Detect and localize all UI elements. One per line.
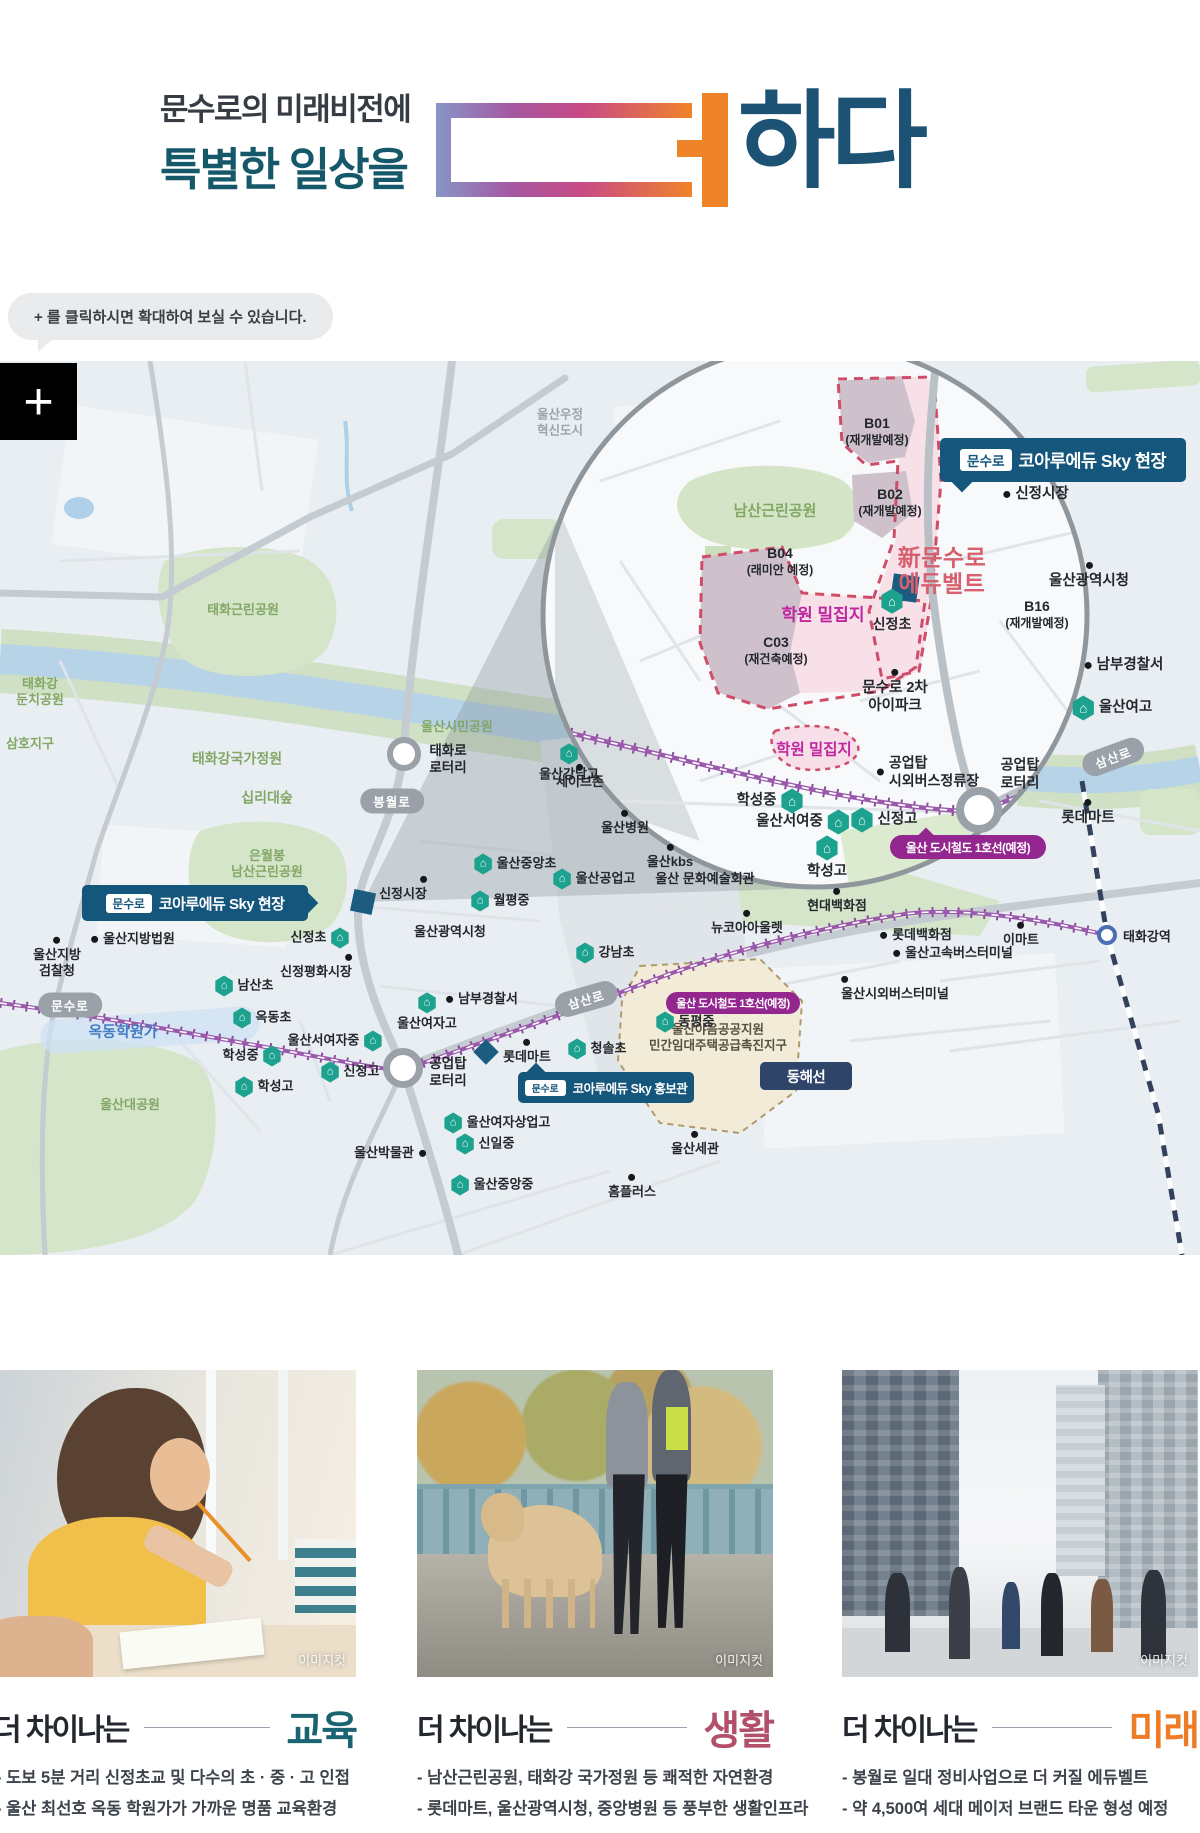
school-hakseong-high-main-school-icon: ⌂ xyxy=(235,1077,254,1098)
logo-suffix-text: 하다 xyxy=(738,90,923,194)
school-ulsan-technical-high-school-icon: ⌂ xyxy=(553,869,572,890)
school-dongpyeong-middle-school-icon: ⌂ xyxy=(656,1012,675,1033)
poi-ulsan-intercity-bus-terminal-label: 울산시외버스터미널 xyxy=(841,986,949,1002)
school-namsan-elem: ⌂남산초 xyxy=(215,976,274,997)
park-ulsan-grand: 울산대공원 xyxy=(100,1097,160,1113)
poi-ulsan-express-bus-terminal-label: 울산고속버스터미널 xyxy=(905,945,1013,961)
school-ulsan-jungang-elem-school-icon: ⌂ xyxy=(474,854,493,875)
poi-lotte-dept-dot xyxy=(880,932,887,939)
taehwaro-rotary-node xyxy=(387,737,421,771)
caption-future-rule xyxy=(992,1727,1112,1728)
poi-lottemart-main-dot xyxy=(524,1039,531,1046)
school-okdong-elem-school-icon: ⌂ xyxy=(233,1008,252,1029)
poi-hyundai-dept-dot xyxy=(834,888,841,895)
road-samsanro-inset: 삼산로 xyxy=(1079,734,1147,779)
poi-newcore-outlet-dot xyxy=(743,910,750,917)
poi-ulsan-city-hall-inset-label: 울산광역시청 xyxy=(1049,572,1129,590)
poi-ulsan-kbs-dot xyxy=(666,844,673,851)
school-ulsan-seo-girls-middle-inset: 울산서여중⌂ xyxy=(756,810,850,835)
school-ulsan-technical-high-label: 울산공업고 xyxy=(576,871,636,887)
school-gangnam-elem-school-icon: ⌂ xyxy=(576,943,595,964)
poi-hyundai-dept-label: 현대백화점 xyxy=(807,898,867,914)
taehwagang-station: 태화강역 xyxy=(1097,925,1171,945)
poi-lottemart-inset-dot xyxy=(1085,799,1092,806)
poi-hyundai-dept: 현대백화점 xyxy=(807,888,867,914)
poi-nambu-police-inset-label: 남부경찰서 xyxy=(1097,656,1164,674)
badge-site-hyeonjang-main: 문수로코아루에듀 Sky 현장 xyxy=(82,885,308,921)
poi-ulsan-express-bus-terminal-dot xyxy=(893,950,900,957)
zoom-hint-tooltip: + 를 클릭하시면 확대하여 보실 수 있습니다. xyxy=(8,293,333,340)
photo1-imagecut-tag: 이미지컷 xyxy=(298,1650,346,1669)
badge-site-hyeonjang-main-pointer xyxy=(296,892,319,915)
badge-site-hyeonjang-inset-pointer xyxy=(951,470,974,493)
park-taehwa-neighborhood: 태화근린공원 xyxy=(207,602,279,618)
park-namsan-inset: 남산근린공원 xyxy=(734,503,817,522)
caption-future-prefix: 더 차이나는 xyxy=(842,1705,976,1749)
school-ulsan-girls-commercial-high-school-icon: ⌂ xyxy=(444,1113,463,1134)
school-ulsan-gangnam-high-school-icon: ⌂ xyxy=(560,743,579,764)
poi-ulsan-museum-label: 울산박물관 xyxy=(354,1145,414,1161)
badge-site-hyeonjang-main-prefix: 문수로 xyxy=(106,894,152,913)
poi-sinjeong-market-inset-label: 신정시장 xyxy=(1015,485,1068,503)
poi-ulsan-district-court-label: 울산지방법원 xyxy=(103,931,175,947)
zone-c03-status: (재건축예정) xyxy=(744,651,807,666)
caption-life-rule xyxy=(567,1727,687,1728)
school-ulsan-girls-high-inset-school-icon: ⌂ xyxy=(1072,696,1095,721)
school-ulsan-technical-high: ⌂울산공업고 xyxy=(553,869,636,890)
location-map: + 태화근린공원태화강둔치공원삼호지구태화강국가정원십리대숲은월봉남산근린공원울… xyxy=(0,361,1200,1255)
poi-nambu-police-main-label: 남부경찰서 xyxy=(458,991,518,1007)
zone-b02-status: (재개발예정) xyxy=(858,503,921,518)
poi-sinjeong-market-main-label: 신정시장 xyxy=(379,886,427,902)
poi-lotte-dept: 롯데백화점 xyxy=(880,927,952,943)
school-hakseong-middle-main-school-icon: ⌂ xyxy=(262,1046,281,1067)
poi-homeplus-label: 홈플러스 xyxy=(608,1184,656,1200)
school-dongpyeong-middle-label: 동평중 xyxy=(679,1014,715,1030)
zone-b02-code: B02 xyxy=(858,486,921,504)
road-munsuro: 문수로 xyxy=(38,993,102,1018)
school-ulsan-girls-high-main-label: 울산여자고 xyxy=(397,1015,457,1031)
photo3-imagecut-tag: 이미지컷 xyxy=(1140,1650,1188,1669)
title-line2: 특별한 일상을 xyxy=(160,133,410,198)
poi-ulsan-museum: 울산박물관 xyxy=(354,1145,426,1161)
tooltip-tail xyxy=(38,338,54,352)
poi-ulsan-district-prosecutors: 울산지방검찰청 xyxy=(33,937,81,980)
school-sinjeong-high-inset-label: 신정고 xyxy=(877,811,917,829)
badge-site-hyeonjang-inset: 문수로코아루에듀 Sky 현장 xyxy=(940,438,1186,482)
school-sinjeong-elem-inset-school-icon: ⌂ xyxy=(880,589,903,614)
zone-c03-code: C03 xyxy=(744,634,807,652)
poi-nambu-police-inset: 남부경찰서 xyxy=(1085,656,1164,674)
school-sinjeong-high-main: ⌂신정고 xyxy=(321,1062,380,1083)
bullet-life-1: - 남산근린공원, 태화강 국가정원 등 쾌적한 자연환경 xyxy=(417,1763,808,1794)
map-zoom-button[interactable]: + xyxy=(0,363,77,440)
poi-lottemart-inset: 롯데마트 xyxy=(1061,799,1114,827)
badge-donghae-line-label: 동해선 xyxy=(787,1066,826,1087)
school-gangnam-elem-label: 강남초 xyxy=(599,945,635,961)
badge-site-hongbogwan-prefix: 문수로 xyxy=(525,1080,566,1096)
school-ulsan-gangnam-high-label: 울산강남고 xyxy=(539,766,599,782)
school-ulsan-jungang-middle-school-icon: ⌂ xyxy=(451,1175,470,1196)
poi-nambu-police-inset-dot xyxy=(1085,662,1092,669)
photo2-dog-head xyxy=(481,1493,524,1542)
photo2-runner1-torso xyxy=(606,1382,649,1486)
poi-lottemart-main-label: 롯데마트 xyxy=(503,1049,551,1065)
school-ulsan-seo-girls-middle-inset-school-icon: ⌂ xyxy=(827,810,850,835)
photo-life: 이미지컷 xyxy=(417,1370,773,1677)
badge-site-hyeonjang-inset-prefix: 문수로 xyxy=(960,449,1012,471)
school-hakseong-middle-main: 학성중⌂ xyxy=(223,1046,282,1067)
poi-sinjeong-market-inset: 신정시장 xyxy=(1003,485,1068,503)
bullet-education-2: - 울산 최선호 옥동 학원가가 가까운 명품 교육환경 xyxy=(0,1794,350,1825)
poi-ulsan-district-court-dot xyxy=(91,936,98,943)
badge-site-hyeonjang-inset-label: 코아루에듀 Sky 현장 xyxy=(1019,448,1167,473)
poi-homeplus-dot xyxy=(629,1174,636,1181)
poi-newcore-outlet: 뉴코아아울렛 xyxy=(711,910,783,936)
poi-ulsan-district-court: 울산지방법원 xyxy=(91,931,175,947)
photo1-hand xyxy=(0,1616,93,1677)
bullets-future: - 봉월로 일대 정비사업으로 더 커질 에듀벨트 - 약 4,500여 세대 … xyxy=(842,1763,1168,1825)
zone-b16-code: B16 xyxy=(1005,598,1068,616)
poi-sinjeong-peace-market-label: 신정평화시장 xyxy=(280,964,352,980)
zone-b16: B16(재개발예정) xyxy=(1005,598,1068,631)
park-eunwolbong-namsan: 은월봉남산근린공원 xyxy=(231,848,303,881)
zone-b16-status: (재개발예정) xyxy=(1005,615,1068,630)
page: 문수로의 미래비전에 특별한 일상을 하다 + 를 클릭하시면 확대하여 보실 … xyxy=(0,0,1200,1833)
poi-lotte-dept-label: 롯데백화점 xyxy=(892,927,952,943)
photo2-dog-legs xyxy=(502,1579,595,1628)
road-bongwolro: 봉월로 xyxy=(360,789,424,814)
poi-gongeuptap-bus-stop: 공업탑시외버스정류장 xyxy=(877,755,979,790)
photo3-person5 xyxy=(1091,1579,1112,1653)
poi-sinjeong-market-main: 신정시장 xyxy=(379,876,427,902)
poi-ulsan-customs: 울산세관 xyxy=(671,1131,719,1157)
bullet-future-1: - 봉월로 일대 정비사업으로 더 커질 에듀벨트 xyxy=(842,1763,1168,1794)
school-hakseong-high-inset: ⌂학성고 xyxy=(807,835,847,880)
school-ulsan-jungang-middle-label: 울산중앙중 xyxy=(474,1177,534,1193)
taehwagang-station-node xyxy=(1097,925,1117,945)
school-sinil-middle-school-icon: ⌂ xyxy=(456,1134,475,1155)
badge-site-hongbogwan-label: 코아루에듀 Sky 홍보관 xyxy=(573,1078,688,1097)
school-sinjeong-high-inset: ⌂신정고 xyxy=(850,808,917,833)
school-ulsan-seo-girls-middle-label: 울산서여자중 xyxy=(288,1033,360,1049)
school-ulsan-girls-high-main: ⌂울산여자고 xyxy=(397,992,457,1031)
bullets-education: - 도보 5분 거리 신정초교 및 다수의 초 · 중 · 고 인접 - 울산 … xyxy=(0,1763,350,1825)
zone-b02: B02(재개발예정) xyxy=(858,486,921,519)
school-hakseong-middle-inset-label: 학성중 xyxy=(736,792,776,810)
poi-ulsan-customs-dot xyxy=(692,1131,699,1138)
poi-ulsan-intercity-bus-terminal: 울산시외버스터미널 xyxy=(841,976,949,1002)
poi-lottemart-inset-label: 롯데마트 xyxy=(1061,809,1114,827)
map-label-layer: 태화근린공원태화강둔치공원삼호지구태화강국가정원십리대숲은월봉남산근린공원울산시… xyxy=(0,361,1200,1255)
photo-future: 이미지컷 xyxy=(842,1370,1198,1677)
logo-gradient-d-icon xyxy=(436,103,692,197)
poi-munsuro-2cha-ipark-label: 문수로 2차아이파크 xyxy=(862,679,927,715)
poi-ulsan-customs-label: 울산세관 xyxy=(671,1141,719,1157)
brand-logo: 하다 xyxy=(436,90,923,207)
school-namsan-elem-school-icon: ⌂ xyxy=(215,976,234,997)
zone-b01-code: B01 xyxy=(845,415,908,433)
school-okdong-elem-label: 옥동초 xyxy=(256,1010,292,1026)
badge-donghae-line: 동해선 xyxy=(760,1062,852,1090)
school-sinjeong-elem-main: 신정초⌂ xyxy=(291,928,350,949)
school-cheongsol-elem: ⌂청솔초 xyxy=(568,1039,627,1060)
poi-ulsan-district-prosecutors-dot xyxy=(54,937,61,944)
bullet-future-2: - 약 4,500여 세대 메이저 브랜드 타운 형성 예정 xyxy=(842,1794,1168,1825)
poi-ulsan-hospital-dot xyxy=(622,810,629,817)
caption-education-rule xyxy=(144,1727,270,1728)
poi-ulsan-kbs-label: 울산kbs xyxy=(647,854,693,870)
school-ulsan-seo-girls-middle-school-icon: ⌂ xyxy=(363,1031,382,1052)
photo3-person1 xyxy=(885,1573,910,1653)
caption-education-keyword: 교육 xyxy=(286,1698,356,1756)
logo-eo-tick xyxy=(677,140,702,157)
photo1-window-bar2 xyxy=(278,1370,288,1560)
poi-ulsan-hospital: 울산병원 xyxy=(601,810,649,836)
poi-ulsan-hospital-label: 울산병원 xyxy=(601,820,649,836)
caption-education: 더 차이나는 교육 xyxy=(0,1700,356,1754)
poi-lottemart-main: 롯데마트 xyxy=(503,1039,551,1065)
poi-ulsan-district-prosecutors-label: 울산지방검찰청 xyxy=(33,947,81,980)
gongeuptap-rotary-node-inset xyxy=(956,787,1002,833)
bullet-education-1: - 도보 5분 거리 신정초교 및 다수의 초 · 중 · 고 인접 xyxy=(0,1763,350,1794)
school-ulsan-jungang-elem-label: 울산중앙초 xyxy=(497,856,557,872)
poi-gongeuptap-bus-stop-dot xyxy=(877,769,884,776)
logo-d-inner xyxy=(451,118,692,182)
school-ulsan-girls-commercial-high-label: 울산여자상업고 xyxy=(467,1115,551,1131)
logo-eo-stroke-icon xyxy=(702,93,728,207)
school-ulsan-girls-high-inset: ⌂울산여고 xyxy=(1072,696,1152,721)
badge-site-hongbogwan: 문수로코아루에듀 Sky 홍보관 xyxy=(518,1072,694,1103)
school-dongpyeong-middle: ⌂동평중 xyxy=(656,1012,715,1033)
photo3-person4 xyxy=(1041,1573,1062,1656)
title-line1: 문수로의 미래비전에 xyxy=(160,84,410,129)
photo3-person2 xyxy=(949,1567,970,1659)
school-hakseong-high-inset-label: 학성고 xyxy=(807,862,847,880)
school-hakseong-high-inset-school-icon: ⌂ xyxy=(816,835,839,860)
badge-metro-line1-main: 울산 도시철도 1호선(예정) xyxy=(666,992,800,1014)
caption-life-keyword: 생활 xyxy=(703,1698,773,1756)
caption-life: 더 차이나는 생활 xyxy=(417,1700,773,1754)
poi-emart-dot xyxy=(1017,922,1024,929)
photo3-person3 xyxy=(1002,1582,1020,1650)
poi-homeplus: 홈플러스 xyxy=(608,1174,656,1200)
school-cheongsol-elem-label: 청솔초 xyxy=(591,1041,627,1057)
poi-sinjeong-peace-market-dot xyxy=(345,954,352,961)
zone-b01: B01(재개발예정) xyxy=(845,415,908,448)
school-wolpyeong-middle-label: 월평중 xyxy=(494,893,530,909)
zoom-hint-text: + 를 클릭하시면 확대하여 보실 수 있습니다. xyxy=(34,309,307,326)
label-hakwon-miljipji-1: 학원 밀집지 xyxy=(782,604,865,625)
poi-munsuro-2cha-ipark: 문수로 2차아이파크 xyxy=(862,669,927,715)
school-hakseong-middle-main-label: 학성중 xyxy=(223,1048,259,1064)
photo2-imagecut-tag: 이미지컷 xyxy=(715,1650,763,1669)
poi-sinjeong-market-inset-dot xyxy=(1003,491,1010,498)
school-ulsan-seo-girls-middle: 울산서여자중⌂ xyxy=(288,1031,383,1052)
poi-ulsan-city-hall-inset: 울산광역시청 xyxy=(1049,562,1129,590)
zone-b01-status: (재개발예정) xyxy=(845,432,908,447)
caption-future-keyword: 미래 xyxy=(1128,1698,1198,1756)
school-wolpyeong-middle-school-icon: ⌂ xyxy=(471,891,490,912)
photo3-building-mid xyxy=(1056,1385,1106,1575)
zone-c03: C03(재건축예정) xyxy=(744,634,807,667)
label-taehwaro-rotary: 태화로로터리 xyxy=(429,743,466,777)
bullets-life: - 남산근린공원, 태화강 국가정원 등 쾌적한 자연환경 - 롯데마트, 울산… xyxy=(417,1763,808,1825)
school-sinjeong-high-inset-school-icon: ⌂ xyxy=(850,808,873,833)
photo1-girl-face xyxy=(150,1438,211,1512)
school-hakseong-high-main: ⌂학성고 xyxy=(235,1077,294,1098)
school-sinjeong-elem-main-label: 신정초 xyxy=(291,930,327,946)
poi-ulsan-express-bus-terminal: 울산고속버스터미널 xyxy=(893,945,1013,961)
caption-education-prefix: 더 차이나는 xyxy=(0,1705,128,1749)
school-gangnam-elem: ⌂강남초 xyxy=(576,943,635,964)
caption-future: 더 차이나는 미래 xyxy=(842,1700,1198,1754)
badge-metro-line1-main-label: 울산 도시철도 1호선(예정) xyxy=(676,995,789,1011)
photo-education: 이미지컷 xyxy=(0,1370,356,1677)
school-sinjeong-elem-inset: ⌂신정초 xyxy=(873,589,912,634)
school-ulsan-girls-high-main-school-icon: ⌂ xyxy=(418,992,437,1013)
school-ulsan-girls-high-inset-label: 울산여고 xyxy=(1099,699,1152,717)
photo2-runner2-vest xyxy=(666,1407,687,1450)
label-hakwon-miljipji-2: 학원 밀집지 xyxy=(776,740,852,759)
school-ulsan-jungang-middle: ⌂울산중앙중 xyxy=(451,1175,534,1196)
school-sinjeong-elem-inset-label: 신정초 xyxy=(873,616,912,634)
poi-munsuro-2cha-ipark-dot xyxy=(891,669,898,676)
school-sinil-middle-label: 신일중 xyxy=(479,1136,515,1152)
label-ulsan-ujeong-innovation-city: 울산우정혁신도시 xyxy=(537,407,583,438)
zone-b04: B04(래미안 예정) xyxy=(747,545,814,578)
poi-gongeuptap-bus-stop-label: 공업탑시외버스정류장 xyxy=(889,755,979,790)
poi-sinjeong-peace-market: 신정평화시장 xyxy=(280,954,352,980)
label-ulsan-city-hall-main: 울산광역시청 xyxy=(414,924,486,940)
park-simnidaesup: 십리대숲 xyxy=(241,789,293,807)
caption-life-prefix: 더 차이나는 xyxy=(417,1705,551,1749)
school-wolpyeong-middle: ⌂월평중 xyxy=(471,891,530,912)
school-ulsan-jungang-elem: ⌂울산중앙초 xyxy=(474,854,557,875)
badge-metro-line1-inset: 울산 도시철도 1호선(예정) xyxy=(890,835,1046,859)
badge-metro-line1-inset-label: 울산 도시철도 1호선(예정) xyxy=(906,839,1030,856)
park-taehwagang-dunchi: 태화강둔치공원 xyxy=(16,676,64,709)
school-sinjeong-high-main-school-icon: ⌂ xyxy=(321,1062,340,1083)
park-ulsan-citizen: 울산시민공원 xyxy=(421,719,493,735)
badge-site-hyeonjang-main-label: 코아루에듀 Sky 현장 xyxy=(159,893,285,914)
school-sinil-middle: ⌂신일중 xyxy=(456,1134,515,1155)
taehwagang-station-label: 태화강역 xyxy=(1123,926,1171,945)
school-ulsan-girls-commercial-high: ⌂울산여자상업고 xyxy=(444,1113,551,1134)
school-ulsan-seo-girls-middle-inset-label: 울산서여중 xyxy=(756,813,823,831)
label-gongeuptap-rotary-main: 공업탑로터리 xyxy=(429,1056,466,1090)
road-samsanro-main: 삼산로 xyxy=(552,978,620,1020)
school-okdong-elem: ⌂옥동초 xyxy=(233,1008,292,1029)
label-gongeuptap-rotary-inset: 공업탑로터리 xyxy=(1001,757,1040,792)
poi-ulsan-museum-dot xyxy=(419,1150,426,1157)
label-okdong-academy-street: 옥동학원가 xyxy=(88,1024,157,1043)
poi-newcore-outlet-label: 뉴코아아울렛 xyxy=(711,920,783,936)
photo3-person6 xyxy=(1141,1570,1166,1659)
school-namsan-elem-label: 남산초 xyxy=(238,978,274,994)
poi-ulsan-city-hall-inset-dot xyxy=(1085,562,1092,569)
school-sinjeong-high-main-label: 신정고 xyxy=(344,1064,380,1080)
poi-ulsan-intercity-bus-terminal-dot xyxy=(841,976,848,983)
gongeuptap-rotary-node xyxy=(383,1048,423,1088)
poi-sinjeong-market-main-dot xyxy=(420,876,427,883)
school-hakseong-high-main-label: 학성고 xyxy=(258,1079,294,1095)
bullet-life-2: - 롯데마트, 울산광역시청, 중앙병원 등 풍부한 생활인프라 xyxy=(417,1794,808,1825)
park-taehwagang-national-garden: 태화강국가정원 xyxy=(192,750,282,768)
photo1-books xyxy=(295,1539,356,1613)
label-ulsan-culture-art-center: 울산 문화예술회관 xyxy=(655,871,754,887)
zone-b04-status: (래미안 예정) xyxy=(747,562,814,577)
park-samho-district: 삼호지구 xyxy=(6,736,54,752)
page-title: 문수로의 미래비전에 특별한 일상을 xyxy=(160,84,410,198)
school-ulsan-gangnam-high: ⌂울산강남고 xyxy=(539,743,599,782)
poi-ulsan-kbs: 울산kbs xyxy=(647,844,693,870)
school-sinjeong-elem-main-school-icon: ⌂ xyxy=(330,928,349,949)
zone-b04-code: B04 xyxy=(747,545,814,563)
school-cheongsol-elem-school-icon: ⌂ xyxy=(568,1039,587,1060)
